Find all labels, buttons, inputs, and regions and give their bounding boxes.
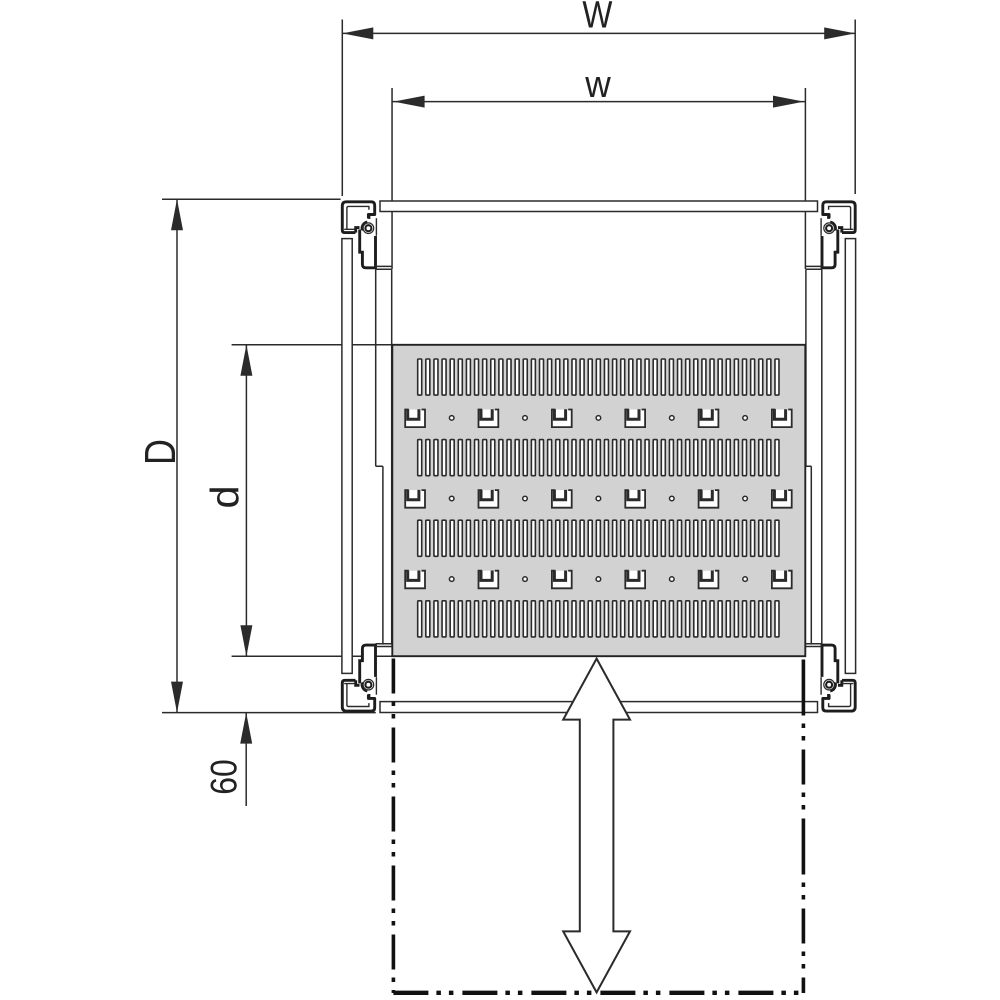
svg-text:d: d: [204, 486, 248, 509]
svg-text:D: D: [136, 439, 185, 465]
svg-text:60: 60: [204, 759, 245, 795]
svg-text:W: W: [582, 0, 612, 37]
svg-text:w: w: [584, 64, 611, 106]
